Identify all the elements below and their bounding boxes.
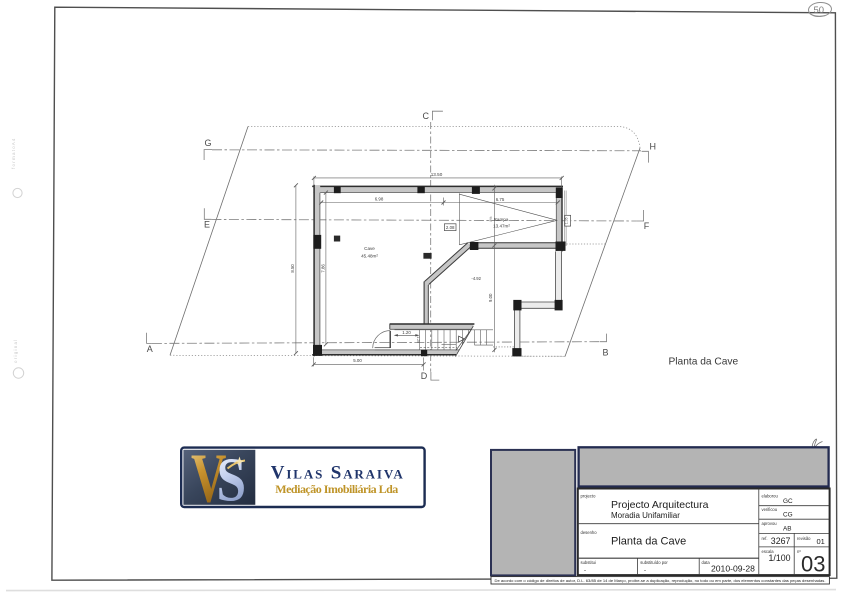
svg-text:o r i g i n a l: o r i g i n a l xyxy=(13,340,18,363)
svg-text:G: G xyxy=(205,138,212,148)
svg-text:C: C xyxy=(423,111,430,121)
svg-text:50: 50 xyxy=(814,5,825,16)
svg-text:F: F xyxy=(644,221,650,231)
svg-text:elaborou: elaborou xyxy=(762,494,779,499)
svg-text:projecto: projecto xyxy=(581,494,597,499)
svg-text:E: E xyxy=(204,219,210,229)
svg-text:01: 01 xyxy=(817,537,825,546)
svg-text:f o r m a t o A 4: f o r m a t o A 4 xyxy=(11,138,16,169)
svg-text:3267: 3267 xyxy=(771,536,791,546)
svg-text:B: B xyxy=(603,347,609,357)
svg-text:verificou: verificou xyxy=(762,507,778,512)
svg-text:-4.92: -4.92 xyxy=(471,276,481,281)
svg-text:Moradia Unifamiliar: Moradia Unifamiliar xyxy=(611,511,680,520)
svg-text:8%: 8% xyxy=(489,217,493,222)
svg-text:13.50: 13.50 xyxy=(431,172,443,177)
svg-text:desenho: desenho xyxy=(581,530,598,535)
svg-text:Planta da Cave: Planta da Cave xyxy=(611,536,686,548)
svg-text:Vilas Saraiva: Vilas Saraiva xyxy=(271,463,404,484)
svg-text:1.20: 1.20 xyxy=(402,330,411,335)
svg-text:ref.: ref. xyxy=(762,536,768,541)
svg-text:13.47m²: 13.47m² xyxy=(493,223,510,228)
svg-text:1.05: 1.05 xyxy=(565,217,569,224)
svg-text:substituído por: substituído por xyxy=(640,560,668,565)
svg-text:S: S xyxy=(217,445,247,515)
svg-text:D: D xyxy=(421,371,428,381)
svg-text:9.00: 9.00 xyxy=(488,293,493,302)
svg-text:2.08: 2.08 xyxy=(446,225,455,230)
svg-text:1/100: 1/100 xyxy=(769,553,791,563)
svg-text:8.50: 8.50 xyxy=(290,264,295,273)
svg-text:A: A xyxy=(147,344,153,354)
svg-text:03: 03 xyxy=(801,552,825,577)
svg-text:AB: AB xyxy=(783,526,792,533)
svg-text:Planta da Cave: Planta da Cave xyxy=(669,356,739,367)
svg-text:CG: CG xyxy=(783,511,793,518)
svg-text:Rampa: Rampa xyxy=(494,217,509,222)
svg-text:6.75: 6.75 xyxy=(496,197,505,202)
svg-text:H: H xyxy=(650,142,657,152)
svg-text:Projecto Arquitectura: Projecto Arquitectura xyxy=(611,499,709,511)
svg-text:De acordo com o código de dire: De acordo com o código de direitos de au… xyxy=(495,579,826,583)
svg-text:-: - xyxy=(584,568,586,574)
svg-text:revisão: revisão xyxy=(797,536,811,541)
svg-text:7.86: 7.86 xyxy=(321,264,326,273)
svg-text:GC: GC xyxy=(783,498,793,505)
svg-text:substitui: substitui xyxy=(581,560,596,565)
svg-text:data: data xyxy=(702,560,711,565)
svg-text:45.48m²: 45.48m² xyxy=(361,253,378,258)
svg-text:2010-09-28: 2010-09-28 xyxy=(711,563,755,573)
svg-text:5.00: 5.00 xyxy=(353,358,362,363)
svg-text:Mediação Imobiliária Lda: Mediação Imobiliária Lda xyxy=(275,482,398,496)
svg-text:6.98: 6.98 xyxy=(375,197,384,202)
svg-text:-: - xyxy=(644,568,646,574)
svg-text:Cave: Cave xyxy=(364,246,375,251)
svg-text:aprovou: aprovou xyxy=(762,521,778,526)
svg-text:1.20: 1.20 xyxy=(416,336,420,343)
